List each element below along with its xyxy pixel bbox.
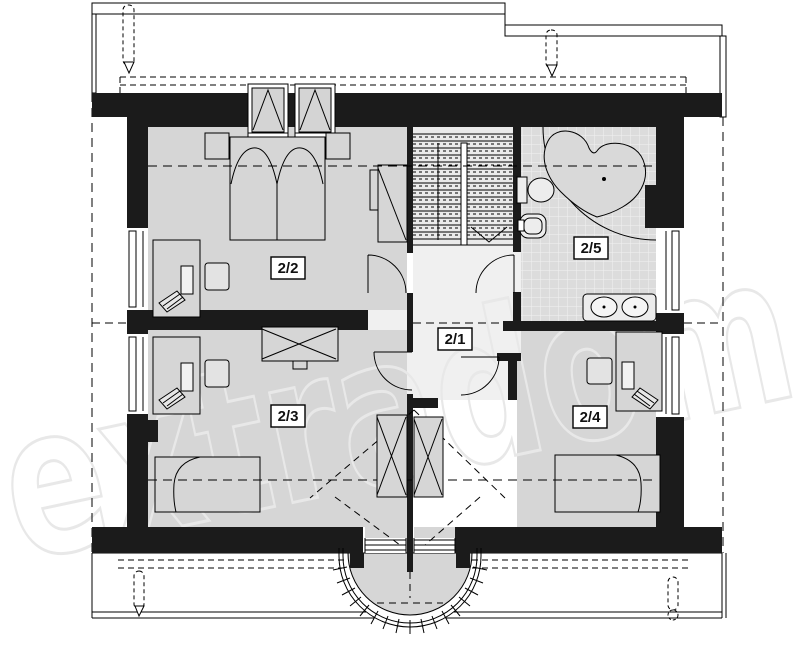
wall-exterior-top [127,117,656,127]
stair-stringer [461,143,467,245]
vent-arrow-icon [124,62,134,73]
window-icon [656,228,684,313]
floor-plan-svg: extradom [0,0,800,648]
wall-exterior-bottom [455,527,656,553]
window-icon [127,228,148,310]
roof-vent-icon [668,577,678,610]
room-label-text: 2/4 [580,409,602,426]
bidet-icon [518,214,546,238]
room-label-2-3: 2/3 [271,405,305,427]
vent-arrow-icon [547,65,557,76]
double-washbasin-icon [583,294,656,321]
balcony-door-icon [414,538,455,553]
wall-hall-left [407,293,413,352]
nightstand-icon [205,133,229,159]
roof-window-icon [295,84,335,140]
room-label-2-5: 2/5 [574,237,608,259]
wall-exterior-right [656,117,684,228]
room-label-text: 2/5 [581,240,602,257]
room-label-text: 2/3 [278,408,299,425]
wall-exterior-bottom [656,527,722,553]
tub-drain [602,177,606,181]
side-table-icon [205,360,229,387]
wall-center-stub [407,398,438,408]
wall-center [407,394,413,572]
balcony-jamb [350,553,364,568]
wall-exterior-left [127,117,148,228]
wall-exterior-left [127,414,148,527]
roof-window-icon [248,84,288,140]
wall-exterior-left [148,420,158,442]
side-table-icon [587,358,612,384]
single-bed-icon [555,455,660,512]
room-label-2-4: 2/4 [573,406,607,428]
monitor-icon [181,363,193,391]
wall-hall-left [407,127,413,253]
room-label-2-1: 2/1 [438,328,472,350]
room-label-text: 2/1 [445,331,466,348]
monitor-icon [622,362,634,389]
wall-hall-24 [497,353,521,361]
floor-plan: extradom [0,0,800,648]
wall-exterior-right [656,313,684,334]
wall-exterior-top [92,93,722,117]
monitor-icon [181,266,193,294]
single-bed-icon [155,457,260,512]
wall-bath-pier [645,185,656,228]
side-table-icon [205,263,229,290]
wall-bath-bottom [503,321,656,331]
nightstand-icon [326,133,350,159]
staircase-icon [413,134,513,245]
vent-arrow-icon [135,606,144,616]
double-bed-icon [230,137,325,240]
toilet-icon [517,177,554,203]
room-label-text: 2/2 [278,260,299,277]
room-label-2-2: 2/2 [271,257,305,279]
balcony-door-icon [365,538,406,553]
eaves-dashed-top [120,77,686,93]
window-icon [127,334,148,414]
wall-exterior-bottom [92,527,363,553]
wardrobe-icon [414,417,443,497]
wardrobe-icon [377,415,407,497]
balcony-jamb [456,553,470,568]
wall-hall-24 [508,361,517,400]
